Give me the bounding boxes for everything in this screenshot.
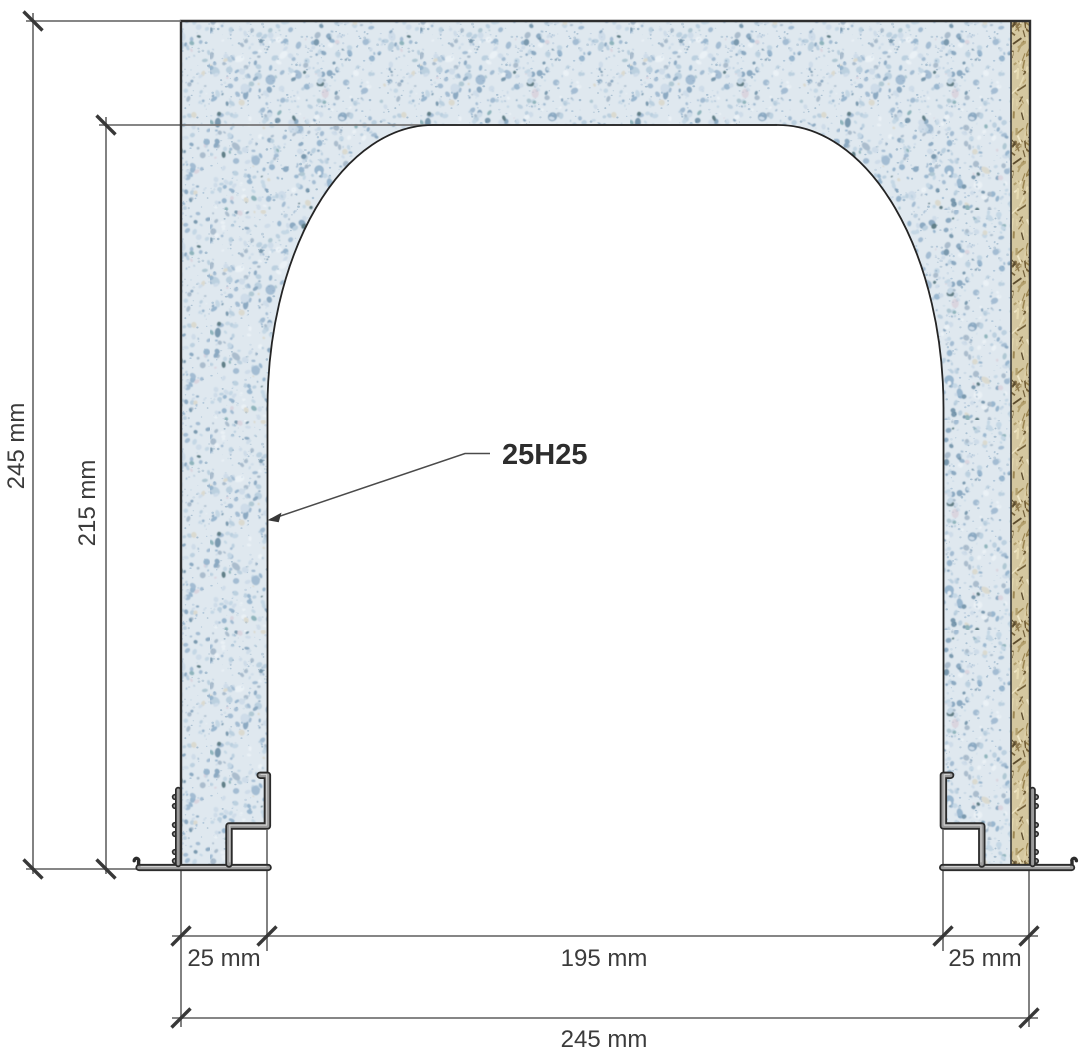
- svg-text:25H25: 25H25: [502, 439, 587, 471]
- svg-text:195 mm: 195 mm: [561, 945, 648, 972]
- svg-text:245 mm: 245 mm: [3, 403, 30, 490]
- svg-text:25 mm: 25 mm: [187, 945, 260, 972]
- svg-text:215 mm: 215 mm: [74, 460, 101, 547]
- svg-text:245 mm: 245 mm: [561, 1026, 648, 1053]
- svg-text:25 mm: 25 mm: [948, 945, 1021, 972]
